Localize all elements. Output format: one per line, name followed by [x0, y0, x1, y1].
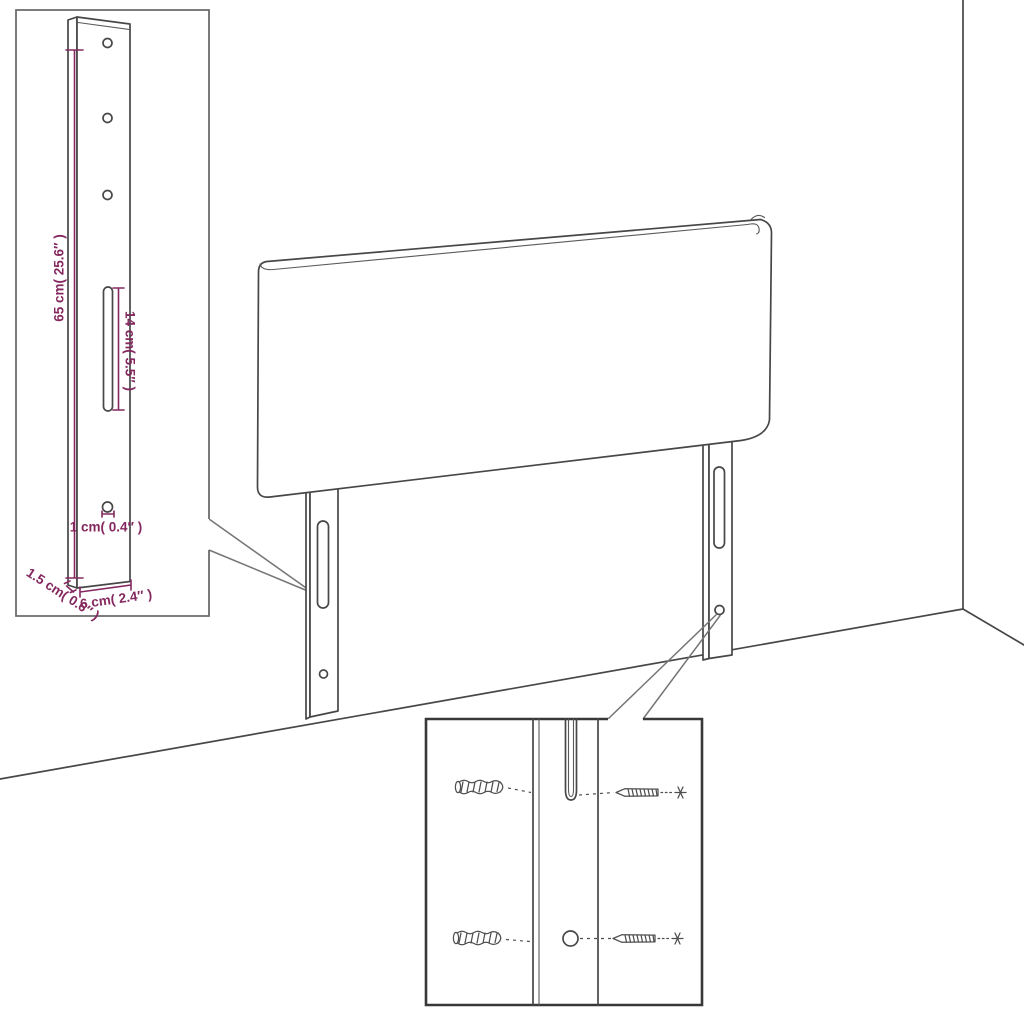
headboard-outline — [257, 220, 771, 498]
headboard-panel — [257, 215, 771, 497]
right-leg — [703, 438, 732, 661]
leg-detail-callout — [209, 519, 309, 592]
mounting-detail-background — [426, 719, 702, 1005]
mounting-detail-inset — [426, 719, 702, 1005]
detail-leg-slot — [104, 287, 113, 411]
dimension-65cm-label: 65 cm( 25.6″ ) — [52, 234, 67, 322]
floor-right-line — [963, 609, 1024, 645]
diagram-canvas: 65 cm( 25.6″ ) 14 cm( 5.5″ ) 1 cm( 0.4″ … — [0, 0, 1024, 1024]
left-leg-slot — [318, 521, 329, 608]
left-leg — [306, 485, 338, 719]
dimension-14cm-label: 14 cm( 5.5″ ) — [123, 311, 138, 391]
detail-leg-side-face — [68, 17, 77, 588]
leg-detail-inset: 65 cm( 25.6″ ) 14 cm( 5.5″ ) 1 cm( 0.4″ … — [16, 10, 209, 623]
right-leg-slot — [714, 467, 725, 548]
dimension-1cm-label: 1 cm( 0.4″ ) — [70, 520, 143, 535]
